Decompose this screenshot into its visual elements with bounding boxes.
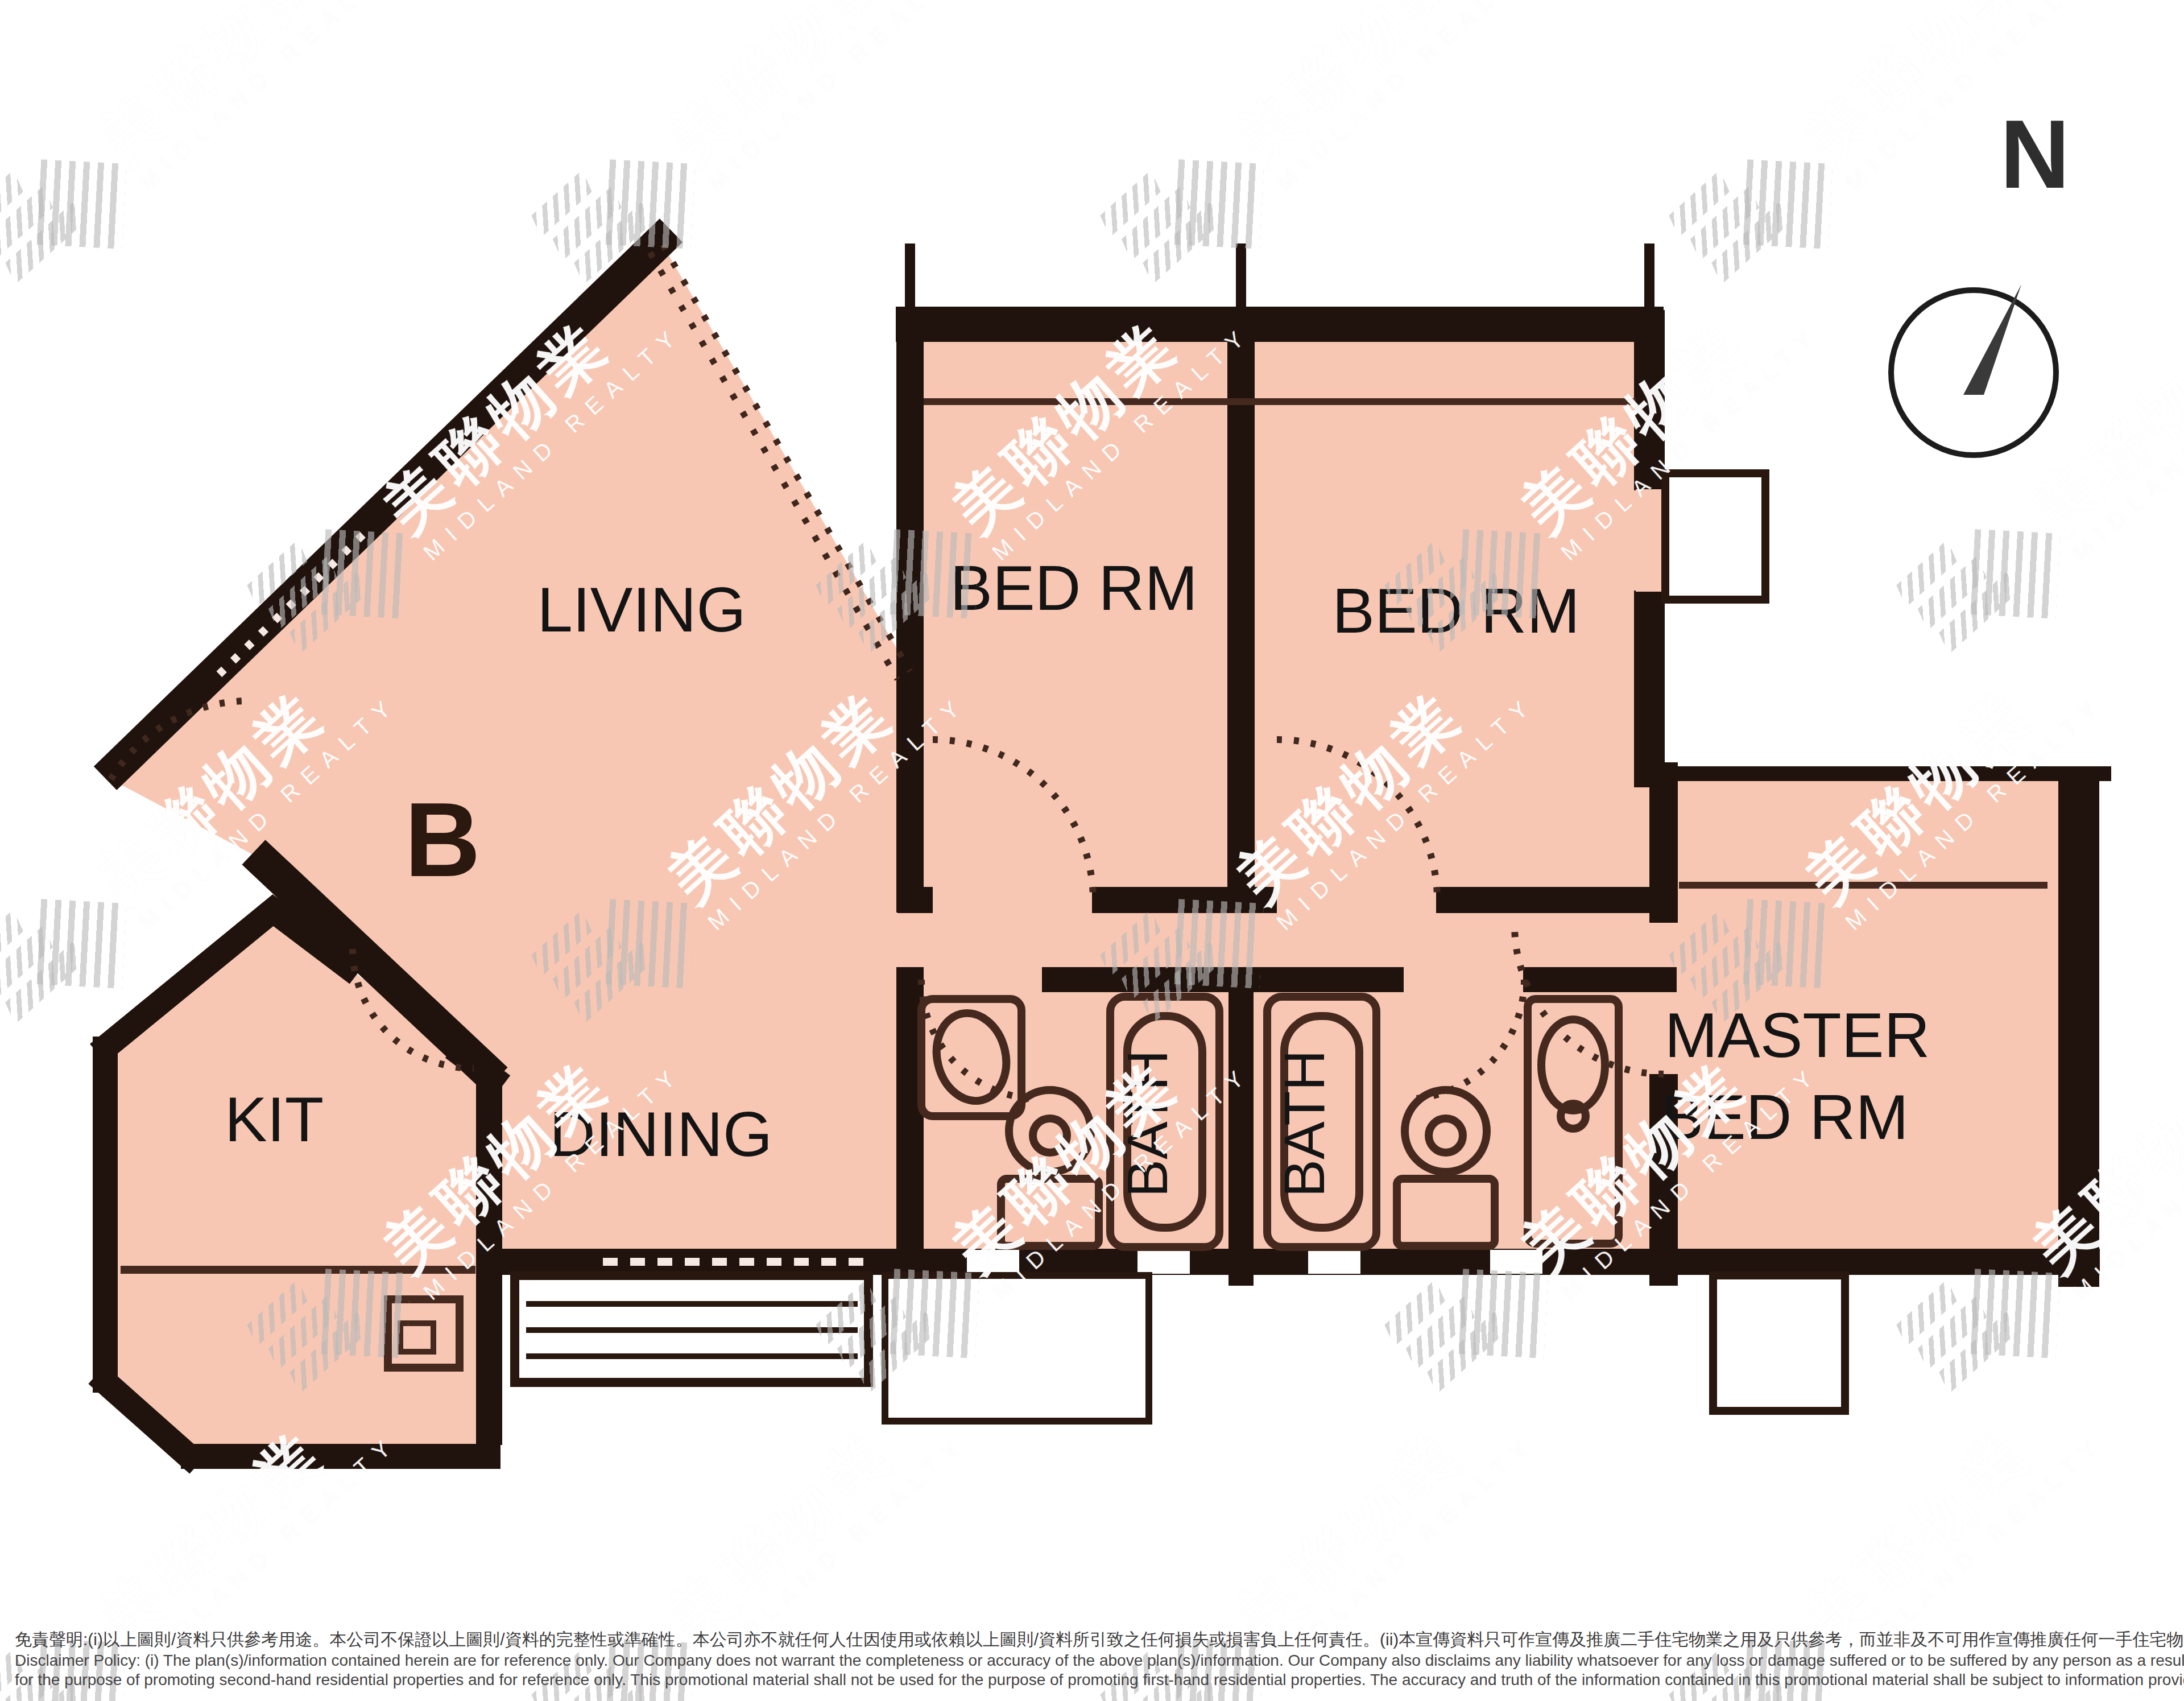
bath-window bbox=[1308, 1250, 1360, 1274]
floor-plan-page: N LIVING BED RM BED RM MASTER BED RM DIN… bbox=[0, 0, 2184, 1701]
label-bath-2: BATH bbox=[1272, 1050, 1336, 1197]
label-kitchen: KIT bbox=[225, 1084, 324, 1155]
bath-window bbox=[1490, 1250, 1542, 1274]
label-unit: B bbox=[404, 781, 481, 898]
north-label: N bbox=[2000, 100, 2070, 208]
label-dining: DINING bbox=[549, 1099, 772, 1170]
disclaimer: 免責聲明:(i)以上圖則/資料只供參考用途。本公司不保證以上圖則/資料的完整性或… bbox=[15, 1628, 2173, 1690]
compass-circle bbox=[1891, 290, 2056, 455]
ac-platform bbox=[1665, 473, 1765, 600]
bath-window bbox=[1137, 1250, 1190, 1274]
compass: N bbox=[1891, 100, 2070, 455]
label-master-line2: BED RM bbox=[1661, 1081, 1909, 1153]
label-bath-1: BATH bbox=[1115, 1050, 1179, 1197]
floor-plan: N LIVING BED RM BED RM MASTER BED RM DIN… bbox=[0, 0, 2184, 1701]
label-bed-rm-1: BED RM bbox=[950, 552, 1198, 624]
bedroom2-window bbox=[1636, 489, 1664, 592]
label-living: LIVING bbox=[537, 574, 746, 645]
bath-window bbox=[967, 1250, 1019, 1274]
disclaimer-en-line2: for the purpose of promoting second-hand… bbox=[15, 1670, 2173, 1690]
label-bed-rm-2: BED RM bbox=[1332, 575, 1580, 646]
ac-platform bbox=[1713, 1275, 1845, 1411]
disclaimer-en-line1: Disclaimer Policy: (i) The plan(s)/infor… bbox=[15, 1651, 2173, 1670]
flat-roof bbox=[885, 1275, 1149, 1421]
label-master-line1: MASTER bbox=[1665, 1000, 1930, 1071]
disclaimer-zh: 免責聲明:(i)以上圖則/資料只供參考用途。本公司不保證以上圖則/資料的完整性或… bbox=[15, 1628, 2173, 1651]
